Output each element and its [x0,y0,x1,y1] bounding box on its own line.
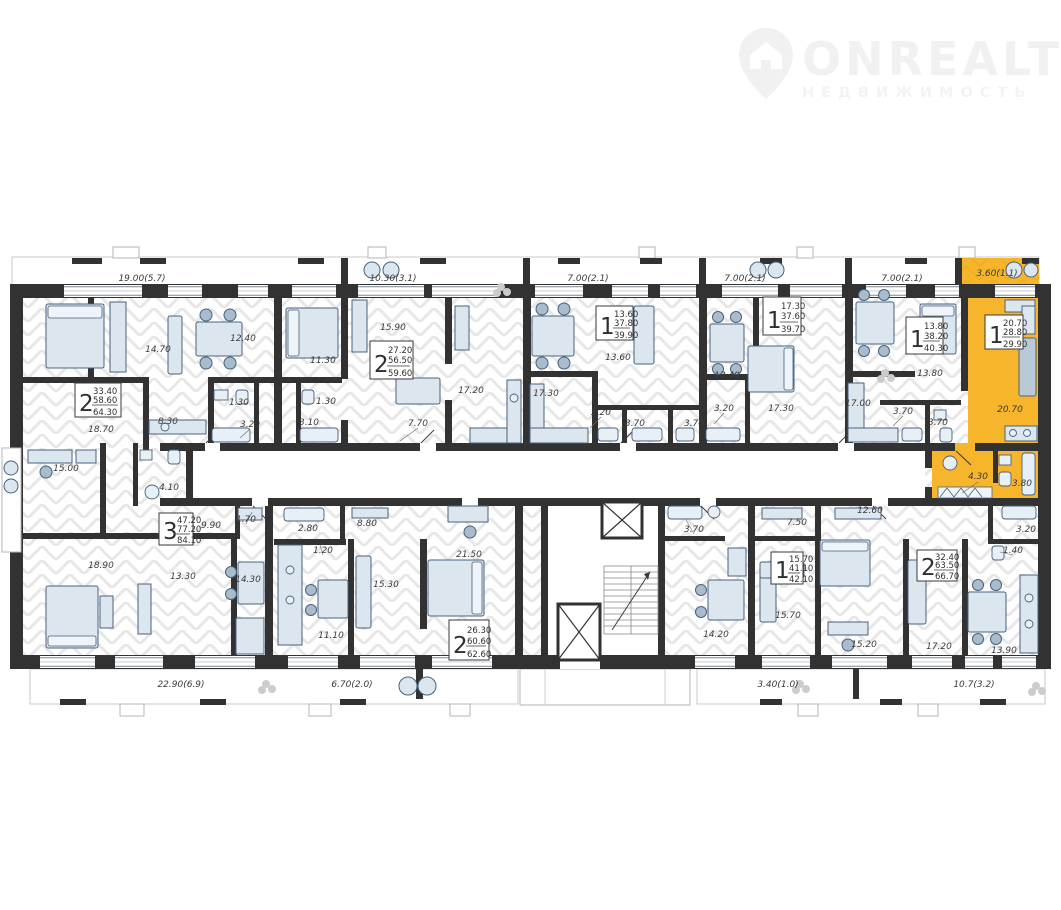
room-area-label: 3.40(1.0) [757,680,798,690]
room-area-label: 22.90(6.9) [157,680,204,690]
room-area-label: 9.90 [201,521,221,531]
apartment-area-value: 84.10 [177,536,201,546]
room-area-label: 12.60 [857,506,883,516]
room-area-label: 3.20 [240,420,260,430]
room-area-label: 8.80 [357,519,377,529]
apartment-stat: 232.4063.5066.70 [917,550,959,582]
room-area-label: 4.30 [968,472,988,482]
room-area-label: 1.30 [316,397,336,407]
room-area-label: 10.30(3.1) [369,274,416,284]
room-area-label: 3.70 [928,418,948,428]
apartment-area-value: 64.30 [93,408,117,418]
apartment-rooms-count: 2 [79,391,94,417]
apartment-area-value: 59.60 [388,369,412,379]
room-area-label: 3.70 [893,407,913,417]
room-area-label: 3.70 [625,419,645,429]
room-area-label: 1.70 [236,515,256,525]
room-area-label: 15.30 [373,580,399,590]
apartment-area-value: 39.70 [781,325,805,335]
room-area-label: 1.40 [1003,546,1023,556]
apartment-area-value: 56.50 [388,356,412,366]
room-area-label: 4.10 [159,483,179,493]
room-area-label: 3.70 [684,525,704,535]
apartment-rooms-count: 3 [163,519,178,545]
room-area-label: 7.00(2.1) [881,274,922,284]
apartment-area-value: 40.30 [924,344,948,354]
apartment-area-value: 63.50 [935,561,959,571]
staircase [604,566,658,634]
room-area-label: 2.80 [298,524,318,534]
room-area-label: 17.20 [926,642,952,652]
apartment-area-value: 60.60 [467,637,491,647]
room-area-label: 15.70 [775,611,801,621]
apartment-rooms-count: 1 [989,323,1004,349]
room-area-label: 13.40 [714,371,740,381]
room-area-label: 3.20 [591,408,611,418]
room-area-label: 3.20 [714,404,734,414]
room-area-label: 1.30 [229,398,249,408]
room-area-label: 19.00(5.7) [118,274,165,284]
room-area-label: 17.30 [533,389,559,399]
apartment-area-value: 62.60 [467,650,491,660]
room-area-label: 3.10 [299,418,319,428]
apartment-area-value: 28.80 [1003,328,1027,338]
room-area-label: 18.70 [88,425,114,435]
elevator-2 [558,604,600,660]
room-area-label: 7.50 [787,518,807,528]
room-area-label: 15.20 [851,640,877,650]
apartment-stat: 117.3037.6039.70 [763,297,805,335]
room-area-label: 13.80 [917,369,943,379]
apartment-rooms-count: 2 [453,633,468,659]
room-area-label: 12.40 [230,334,256,344]
room-area-label: 11.30 [310,356,336,366]
room-area-label: 7.00(2.1) [567,274,608,284]
apartment-rooms-count: 1 [910,327,925,353]
room-area-label: 20.70 [997,405,1023,415]
apartment-area-value: 37.60 [781,312,805,322]
apartment-area-value: 37.80 [614,319,638,329]
room-area-label: 14.30 [235,575,261,585]
apartment-rooms-count: 1 [767,308,782,334]
apartment-stat-selected[interactable]: 120.7028.8029.90 [985,315,1027,350]
floor-plan-page: ONREALT НЕДВИЖИМОСТЬ [0,0,1061,910]
apartment-stat: 347.2077.2084.10 [159,513,201,546]
floor-plan-canvas: ONREALT НЕДВИЖИМОСТЬ [0,0,1061,910]
apartment-area-value: 26.30 [467,626,491,636]
room-area-label: 18.90 [88,561,114,571]
logo-subtitle: НЕДВИЖИМОСТЬ [802,85,1032,101]
apartment-rooms-count: 2 [374,352,389,378]
apartment-area-value: 13.80 [924,322,948,332]
apartment-area-value: 17.30 [781,302,805,312]
apartment-stat: 113.6037.8039.90 [596,306,638,341]
room-area-label: 1.20 [313,546,333,556]
room-area-label: 13.60 [605,353,631,363]
room-area-label: 13.30 [170,572,196,582]
room-area-label: 17.00 [845,399,871,409]
apartment-stat: 226.3060.6062.60 [449,620,491,660]
apartment-stat: 227.2056.5059.60 [370,341,413,379]
apartment-area-value: 41.10 [789,564,813,574]
apartment-area-value: 58.60 [93,396,117,406]
room-area-label: 7.70 [408,419,428,429]
room-area-label: 14.70 [145,345,171,355]
room-area-label: 21.50 [456,550,482,560]
apartment-area-value: 42.10 [789,575,813,585]
apartment-stat: 115.7041.1042.10 [771,552,813,585]
apartment-area-value: 39.90 [614,331,638,341]
room-area-label: 3.80 [1012,479,1032,489]
logo-pin-icon [739,28,793,99]
apartment-stat: 233.4058.6064.30 [75,383,121,418]
room-area-label: 8.30 [158,417,178,427]
room-area-label: 3.20 [1016,525,1036,535]
room-area-label: 11.10 [318,631,344,641]
apartment-area-value: 38.20 [924,332,948,342]
apartment-stat: 113.8038.2040.30 [906,317,948,354]
room-area-label: 17.30 [768,404,794,414]
elevator-1 [602,502,642,538]
apartment-area-value: 66.70 [935,572,959,582]
room-area-label: 13.90 [991,646,1017,656]
room-area-label: 17.20 [458,386,484,396]
apartment-rooms-count: 1 [775,558,790,584]
onrealt-logo: ONREALT НЕДВИЖИМОСТЬ [739,28,1061,101]
room-area-label: 15.90 [380,323,406,333]
room-area-label: 3.70 [684,419,704,429]
logo-title: ONREALT [802,32,1061,86]
room-area-label: 15.00 [53,464,79,474]
apartment-area-value: 29.90 [1003,340,1027,350]
apartment-rooms-count: 1 [600,314,615,340]
apartment-area-value: 27.20 [388,346,412,356]
room-area-label: 14.20 [703,630,729,640]
entrance-porch [520,669,690,705]
corridor [193,451,925,498]
room-area-label: 10.7(3.2) [953,680,994,690]
apartment-area-value: 77.20 [177,525,201,535]
apartment-rooms-count: 2 [921,555,936,581]
room-area-label: 7.00(2.1) [724,274,765,284]
room-area-label: 3.60(1.1) [976,269,1017,279]
room-area-label: 6.70(2.0) [331,680,372,690]
